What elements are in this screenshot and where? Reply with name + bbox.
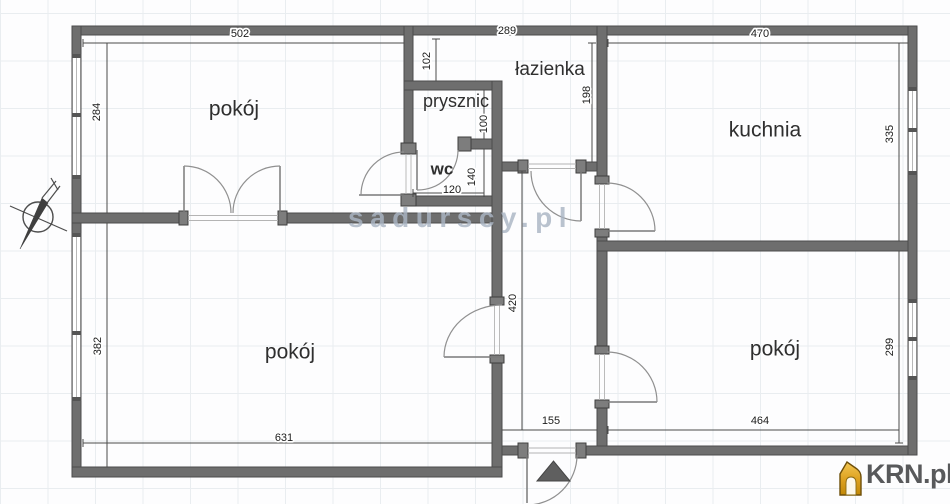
dim-100: 100 <box>478 115 490 133</box>
dim-284: 284 <box>91 103 103 121</box>
floor-plan-drawing: 502 284 289 102 470 335 198 100 140 120 … <box>0 0 950 504</box>
walls <box>72 26 917 477</box>
door-opening-lines <box>188 154 605 453</box>
dim-155: 155 <box>542 415 560 427</box>
dim-140: 140 <box>466 168 478 186</box>
dim-289: 289 <box>498 25 516 37</box>
dim-464: 464 <box>751 415 769 427</box>
dim-198: 198 <box>581 86 593 104</box>
dim-102: 102 <box>421 52 433 70</box>
room-label-lazienka: łazienka <box>515 59 585 80</box>
entrance-arrow <box>537 461 570 481</box>
dim-631: 631 <box>275 432 293 444</box>
room-label-wc: wc <box>430 159 454 178</box>
room-label-pokoj-top-left: pokój <box>209 98 259 121</box>
dim-470: 470 <box>751 28 769 40</box>
dim-420: 420 <box>507 294 519 312</box>
dim-299: 299 <box>884 338 896 356</box>
room-labels: pokój łazienka prysznic wc kuchnia pokój… <box>209 59 802 364</box>
door-posts <box>179 137 609 458</box>
room-label-pokoj-bottom-right: pokój <box>750 338 800 361</box>
room-label-pokoj-bottom-left: pokój <box>265 341 315 364</box>
krn-logo-text: KRN.pl <box>866 459 950 490</box>
dim-382: 382 <box>92 337 104 355</box>
room-label-kuchnia: kuchnia <box>729 119 802 142</box>
krn-logo: KRN.pl <box>835 459 950 490</box>
dim-120: 120 <box>443 184 461 196</box>
dim-502: 502 <box>231 28 249 40</box>
room-label-prysznic: prysznic <box>423 91 489 111</box>
dim-335: 335 <box>884 125 896 143</box>
floor-plan-canvas: 502 284 289 102 470 335 198 100 140 120 … <box>0 0 950 504</box>
compass-icon <box>10 178 67 249</box>
